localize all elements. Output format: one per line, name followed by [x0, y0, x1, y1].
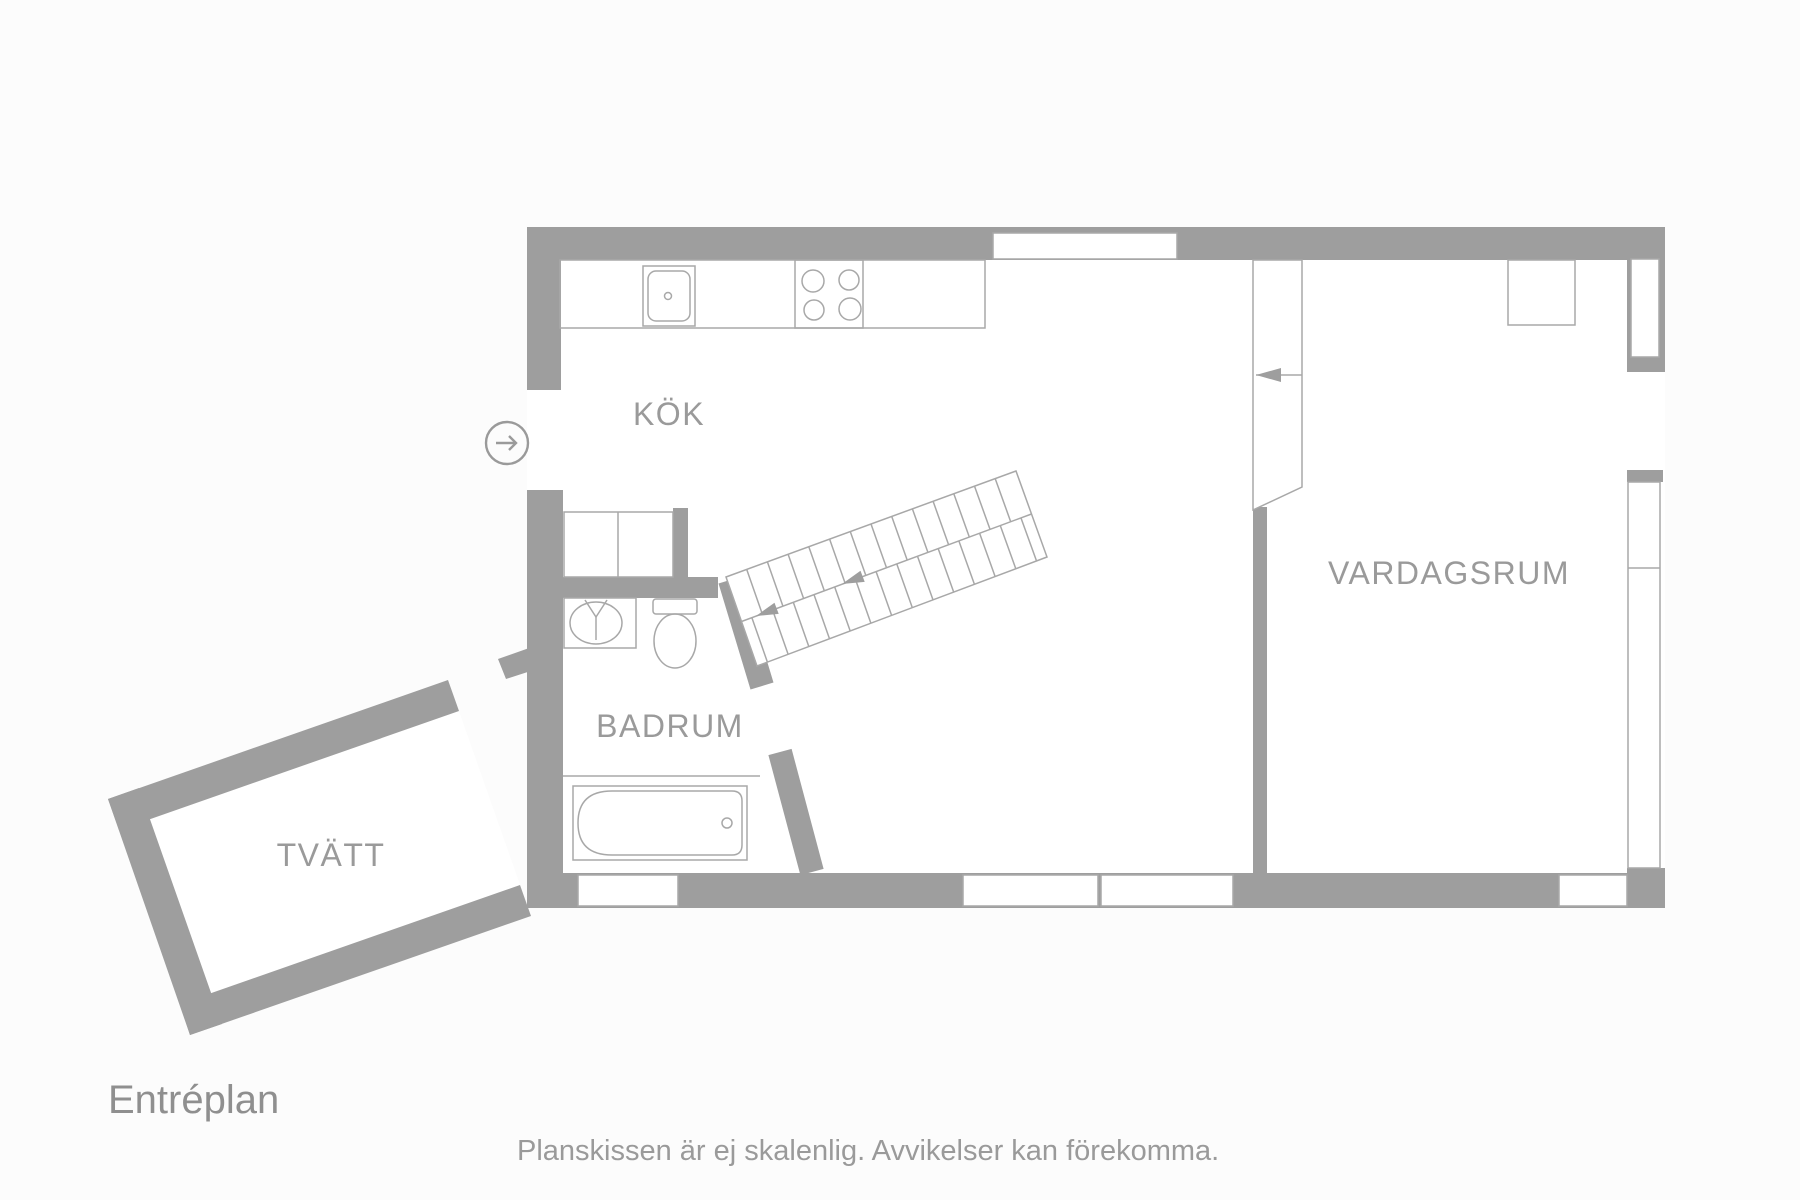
wall-left-lower — [527, 490, 563, 877]
upper-stair-flight — [1253, 260, 1302, 510]
window-top — [993, 233, 1177, 259]
closet-side-wall — [673, 508, 688, 577]
room-label-badrum: BADRUM — [596, 708, 744, 744]
window-bottom-middle-left — [963, 875, 1098, 906]
floor-areas — [108, 227, 1665, 1035]
wall-right-cap — [1627, 470, 1663, 482]
floor-plan-drawing: KÖK VARDAGSRUM BADRUM TVÄTT — [0, 0, 1800, 1200]
floor-plan-page: KÖK VARDAGSRUM BADRUM TVÄTT Entréplan Pl… — [0, 0, 1800, 1200]
window-bottom-right — [1559, 875, 1627, 906]
bathroom-top-wall — [560, 577, 718, 598]
room-label-kok: KÖK — [633, 396, 705, 432]
livingroom-partition-wall — [1253, 507, 1267, 873]
window-right-upper — [1631, 259, 1659, 357]
window-bottom-middle-right — [1101, 875, 1233, 906]
entry-arrow-icon — [486, 422, 528, 464]
window-bottom-bathroom — [578, 875, 678, 906]
window-right-long — [1628, 482, 1660, 868]
wall-left-upper — [527, 227, 561, 390]
plan-disclaimer: Planskissen är ej skalenlig. Avvikelser … — [517, 1135, 1219, 1168]
wall-right-lower-corner — [1627, 868, 1665, 908]
plan-title: Entréplan — [108, 1078, 279, 1123]
room-label-vardagsrum: VARDAGSRUM — [1328, 555, 1570, 591]
room-label-tvatt: TVÄTT — [277, 837, 386, 873]
